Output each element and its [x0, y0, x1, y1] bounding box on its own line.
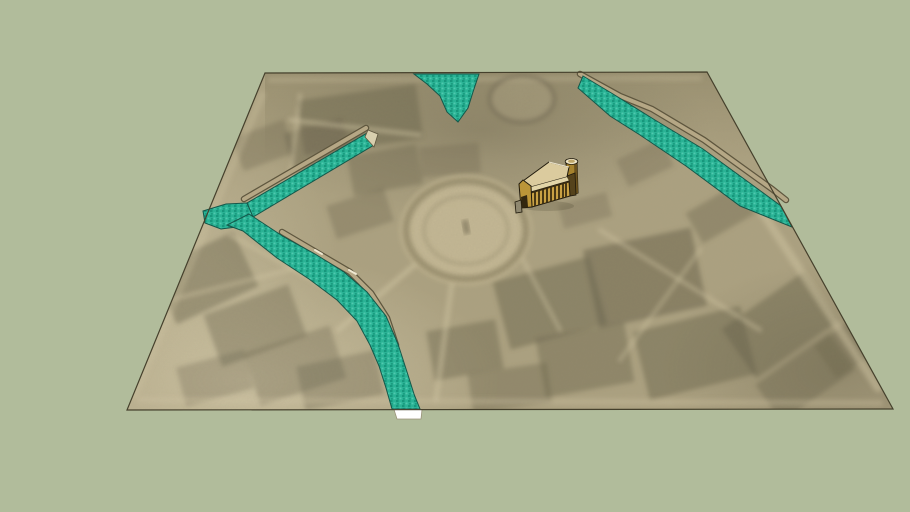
- canal-cut-face-bottom: [394, 410, 422, 420]
- gable-doorway: [521, 195, 528, 208]
- 3d-viewport[interactable]: [0, 0, 910, 512]
- building-base-step: [515, 200, 522, 213]
- tower-cap-inner: [568, 160, 575, 163]
